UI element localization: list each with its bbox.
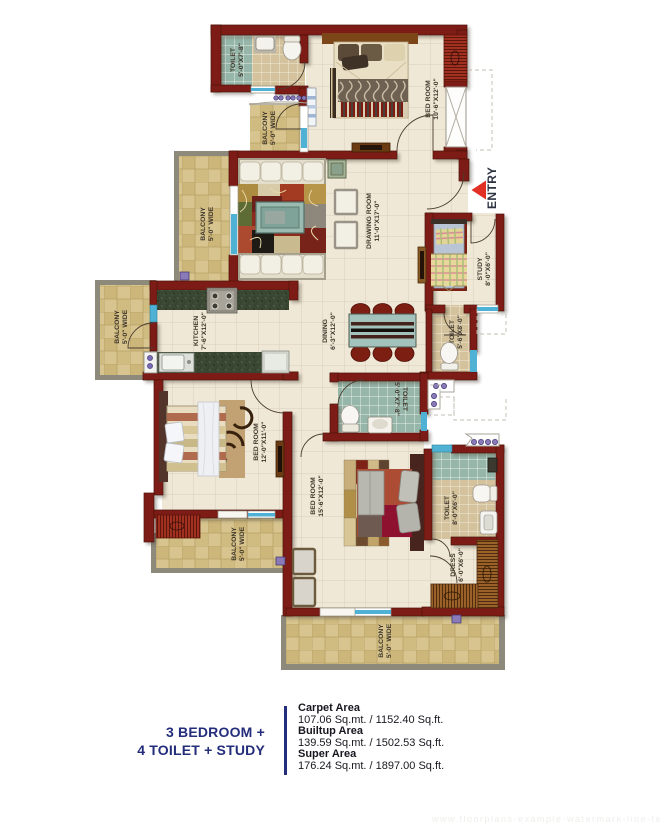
- svg-text:BED ROOM: BED ROOM: [310, 477, 317, 515]
- svg-text:TOILET: TOILET: [444, 495, 451, 520]
- svg-text:5'-0" WIDE: 5'-0" WIDE: [122, 309, 129, 344]
- svg-text:8'-0"X6'-0": 8'-0"X6'-0": [452, 491, 459, 525]
- svg-text:DRAWING ROOM: DRAWING ROOM: [366, 193, 373, 249]
- svg-text:5'-6"X8'-0": 5'-6"X8'-0": [457, 315, 464, 349]
- svg-text:7'-6"X12'-0": 7'-6"X12'-0": [201, 312, 208, 350]
- svg-text:5'-0" WIDE: 5'-0" WIDE: [386, 623, 393, 658]
- svg-text:BED ROOM: BED ROOM: [253, 423, 260, 461]
- svg-text:15'-6"X12'-0": 15'-6"X12'-0": [318, 475, 325, 516]
- svg-text:10'-6"X12'-0": 10'-6"X12'-0": [433, 78, 440, 119]
- svg-text:BALCONY: BALCONY: [114, 310, 121, 344]
- svg-text:BALCONY: BALCONY: [231, 527, 238, 561]
- svg-text:KITCHEN: KITCHEN: [193, 316, 200, 346]
- svg-text:BALCONY: BALCONY: [378, 624, 385, 658]
- svg-text:www.floorplans-example-waterma: www.floorplans-example-watermark-line-te…: [431, 814, 660, 824]
- svg-text:11'-0"X17'-0": 11'-0"X17'-0": [374, 200, 381, 241]
- svg-text:5'-0"X7'-8": 5'-0"X7'-8": [238, 43, 245, 77]
- svg-text:DRESS: DRESS: [450, 553, 457, 577]
- svg-text:BALCONY: BALCONY: [262, 111, 269, 145]
- svg-text:5'-0" WIDE: 5'-0" WIDE: [208, 206, 215, 241]
- svg-text:8'-0"X6'-0": 8'-0"X6'-0": [485, 252, 492, 286]
- svg-text:12'-0"X11'-0": 12'-0"X11'-0": [261, 421, 268, 462]
- svg-text:STUDY: STUDY: [477, 257, 484, 281]
- svg-text:6'-0"X6'-0": 6'-0"X6'-0": [458, 548, 465, 582]
- svg-text:ENTRY: ENTRY: [485, 167, 499, 209]
- svg-text:BALCONY: BALCONY: [200, 207, 207, 241]
- svg-text:DINING: DINING: [322, 319, 329, 343]
- svg-text:TOILET: TOILET: [401, 387, 408, 412]
- svg-text:6'-3"X12'-0": 6'-3"X12'-0": [330, 312, 337, 350]
- svg-text:BED ROOM: BED ROOM: [425, 80, 432, 118]
- svg-text:TOILET: TOILET: [230, 47, 237, 72]
- svg-text:5'-0"X7'-8": 5'-0"X7'-8": [393, 382, 400, 416]
- svg-text:5'-0" WIDE: 5'-0" WIDE: [239, 526, 246, 561]
